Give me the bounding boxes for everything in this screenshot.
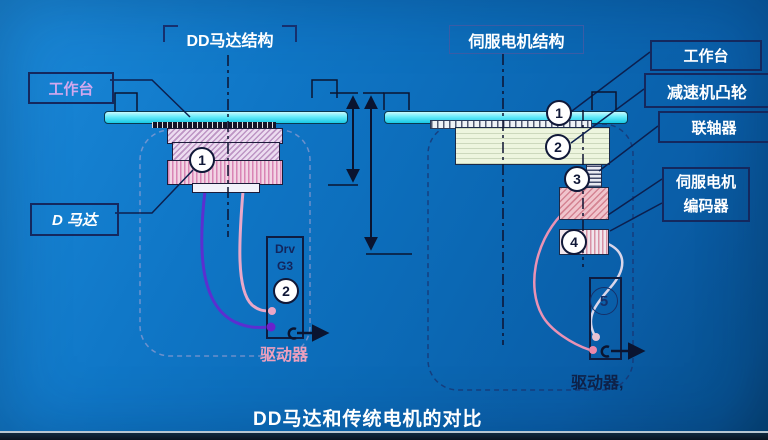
- dd-structure-title: DD马达结构: [163, 25, 297, 52]
- marker-4-encoder: 4: [561, 229, 587, 255]
- marker-2-dd-driver: 2: [273, 278, 299, 304]
- marker-2-reducer: 2: [545, 134, 571, 160]
- dd-encoder-cable: [240, 191, 269, 311]
- servo-motor-label-text: 伺服电机: [676, 171, 736, 195]
- marker-2-servo-text: 2: [554, 139, 562, 155]
- marker-1-dd-motor: 1: [189, 147, 215, 173]
- servo-encoder-label: 伺服电机 编码器: [662, 167, 750, 222]
- marker-1-dd-text: 1: [198, 152, 206, 168]
- cable-connector-dots: [267, 307, 601, 354]
- marker-3-coupling: 3: [564, 166, 590, 192]
- marker-2-dd-text: 2: [282, 283, 290, 299]
- servo-structure-title-text: 伺服电机结构: [468, 28, 564, 52]
- coupling-label-text: 联轴器: [691, 117, 736, 138]
- driver-model-line2: G3: [277, 259, 293, 273]
- comparison-diagram: Drv G3: [0, 0, 768, 440]
- marker-5-servo-text: 5: [600, 293, 608, 310]
- worktable-label-right-text: 工作台: [683, 45, 728, 66]
- reducer-cam-box: [455, 127, 610, 165]
- bottom-bar: [0, 433, 768, 440]
- worktable-label-right: 工作台: [650, 40, 762, 71]
- driver-label-right-text: 驱动器,: [571, 375, 623, 392]
- servo-structure-title: 伺服电机结构: [449, 25, 584, 54]
- driver-label-right: 驱动器,: [571, 369, 623, 393]
- encoder-label-text: 编码器: [683, 195, 728, 219]
- page-title: DD马达和传统电机的对比: [253, 404, 482, 431]
- title-corner-left: [163, 25, 178, 42]
- dd-motor-shaft-plate: [192, 183, 260, 193]
- reducer-cam-label: 减速机凸轮: [644, 73, 768, 108]
- dd-structure-title-text: DD马达结构: [186, 27, 273, 51]
- dd-motor-label-text: D 马达: [52, 209, 97, 230]
- driver-model-line1: Drv: [275, 242, 295, 256]
- dd-motor-body-lower: [167, 160, 283, 185]
- height-dimension-arrows: [353, 98, 371, 248]
- marker-1-servo-text: 1: [555, 105, 563, 121]
- dd-motor-label: D 马达: [30, 203, 119, 236]
- driver-label-left: 驱动器: [260, 341, 308, 365]
- marker-3-servo-text: 3: [573, 171, 581, 187]
- driver-label-left-text: 驱动器: [260, 347, 308, 364]
- worktable-label-left-text: 工作台: [48, 78, 93, 99]
- servo-motor-body: [559, 187, 609, 220]
- marker-1-worktable: 1: [546, 100, 572, 126]
- worktable-label-left: 工作台: [28, 72, 114, 104]
- title-corner-right: [282, 25, 297, 42]
- marker-4-servo-text: 4: [570, 234, 578, 250]
- coupling-label: 联轴器: [658, 111, 768, 143]
- marker-5-driver: 5: [590, 287, 618, 315]
- reducer-cam-label-text: 减速机凸轮: [667, 79, 747, 103]
- page-title-text: DD马达和传统电机的对比: [253, 409, 482, 430]
- dd-power-cable: [202, 191, 269, 327]
